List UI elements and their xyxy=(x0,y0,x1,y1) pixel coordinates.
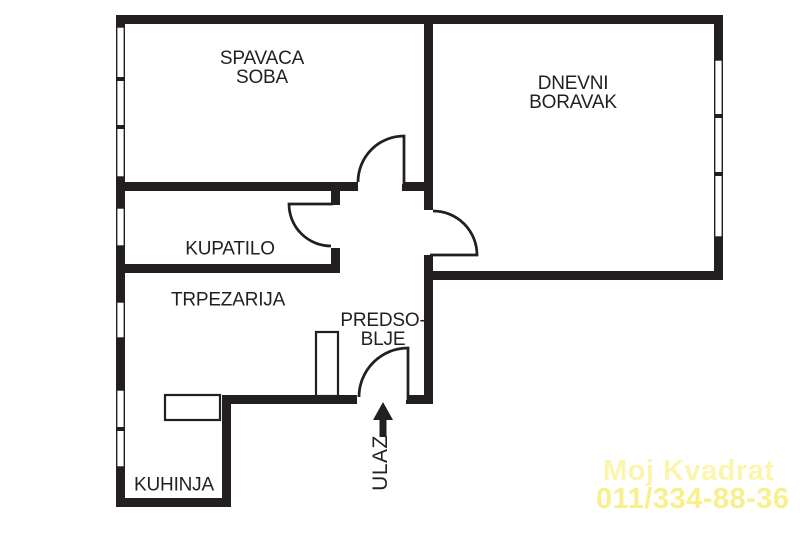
window-bedroom xyxy=(117,27,125,177)
wall-entrance-right xyxy=(406,395,433,404)
window-kitchen-divider xyxy=(116,427,125,431)
room-label-dnevni-boravak: DNEVNI BORAVAK xyxy=(529,74,617,112)
wall-bathroom-bottom xyxy=(116,264,340,273)
door-entrance xyxy=(359,348,408,400)
entrance-arrow-icon xyxy=(373,402,393,437)
window-bathroom xyxy=(117,208,125,246)
window-bedroom-divider xyxy=(116,125,125,129)
wall-bedroom-bottom-left xyxy=(116,182,358,191)
walls xyxy=(116,15,723,507)
wall-kitchen-bottom xyxy=(116,498,231,507)
room-label-predsoblje: PREDSO- BLJE xyxy=(340,311,425,349)
wall-bedroom-bottom-right xyxy=(402,182,433,191)
entrance-label: ULAZ xyxy=(369,435,393,491)
room-label-spavaca-soba: SPAVACA SOBA xyxy=(220,49,304,87)
room-label-kupatilo: KUPATILO xyxy=(185,240,275,259)
window-living-divider xyxy=(714,172,723,176)
hallway-closet xyxy=(316,332,338,396)
window-living-divider xyxy=(714,114,723,118)
room-label-kuhinja: KUHINJA xyxy=(134,476,214,495)
watermark-line1: Moj Kvadrat xyxy=(603,457,774,486)
door-living-room xyxy=(430,211,477,255)
wall-top xyxy=(116,15,723,24)
window-bedroom-divider xyxy=(116,77,125,81)
window-living xyxy=(715,60,723,237)
wall-kitchen-right xyxy=(222,395,231,507)
wall-divider-upper xyxy=(424,23,433,210)
kitchen-counter xyxy=(165,395,220,420)
fixtures xyxy=(165,332,338,420)
floor-plan-drawing xyxy=(0,0,800,533)
window-dining xyxy=(117,302,125,338)
room-label-trpezarija: TRPEZARIJA xyxy=(171,291,285,310)
wall-living-bottom xyxy=(424,271,723,280)
door-bathroom xyxy=(289,204,333,246)
door-bedroom xyxy=(358,136,404,184)
watermark-line2: 011/334-88-36 xyxy=(596,485,790,514)
floor-plan-canvas: SPAVACA SOBA DNEVNI BORAVAK KUPATILO TRP… xyxy=(0,0,800,533)
